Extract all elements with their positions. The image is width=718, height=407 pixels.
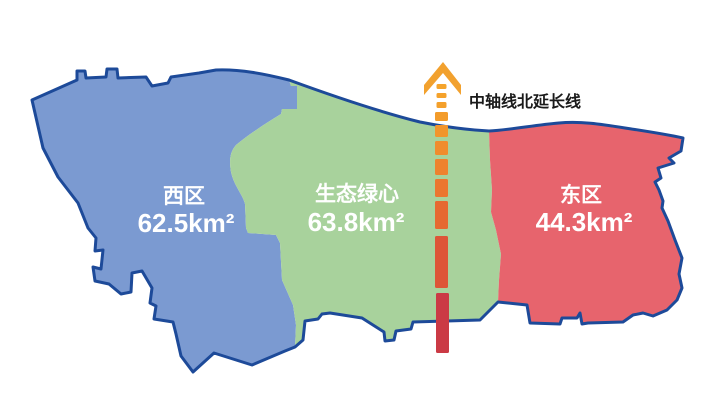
axis-dash: [435, 201, 448, 229]
districts-map: 中轴线北延长线 西区 62.5km² 生态绿心 63.8km² 东区 44.3k…: [0, 0, 718, 407]
region-west-area: 62.5km²: [138, 208, 235, 238]
axis-arrow-up-icon: [424, 62, 461, 95]
axis-dash: [435, 141, 448, 155]
axis-dash: [437, 84, 447, 89]
axis-dash: [437, 102, 447, 108]
axis-dash: [435, 236, 448, 288]
region-green-heart-label: 生态绿心 63.8km²: [308, 182, 405, 237]
axis-dash: [437, 93, 447, 98]
axis-line-label: 中轴线北延长线: [469, 92, 581, 111]
region-green-heart-name: 生态绿心: [315, 182, 399, 206]
infographic-canvas: 中轴线北延长线 西区 62.5km² 生态绿心 63.8km² 东区 44.3k…: [0, 0, 718, 407]
region-east-area: 44.3km²: [536, 207, 633, 237]
axis-dash: [435, 179, 448, 197]
region-green-heart-area: 63.8km²: [308, 207, 405, 237]
axis-dash: [435, 159, 448, 175]
region-west-name: 西区: [163, 185, 205, 208]
axis-dash: [435, 112, 448, 121]
region-east-name: 东区: [560, 183, 602, 207]
axis-dash: [435, 125, 448, 137]
axis-dash: [436, 293, 449, 353]
